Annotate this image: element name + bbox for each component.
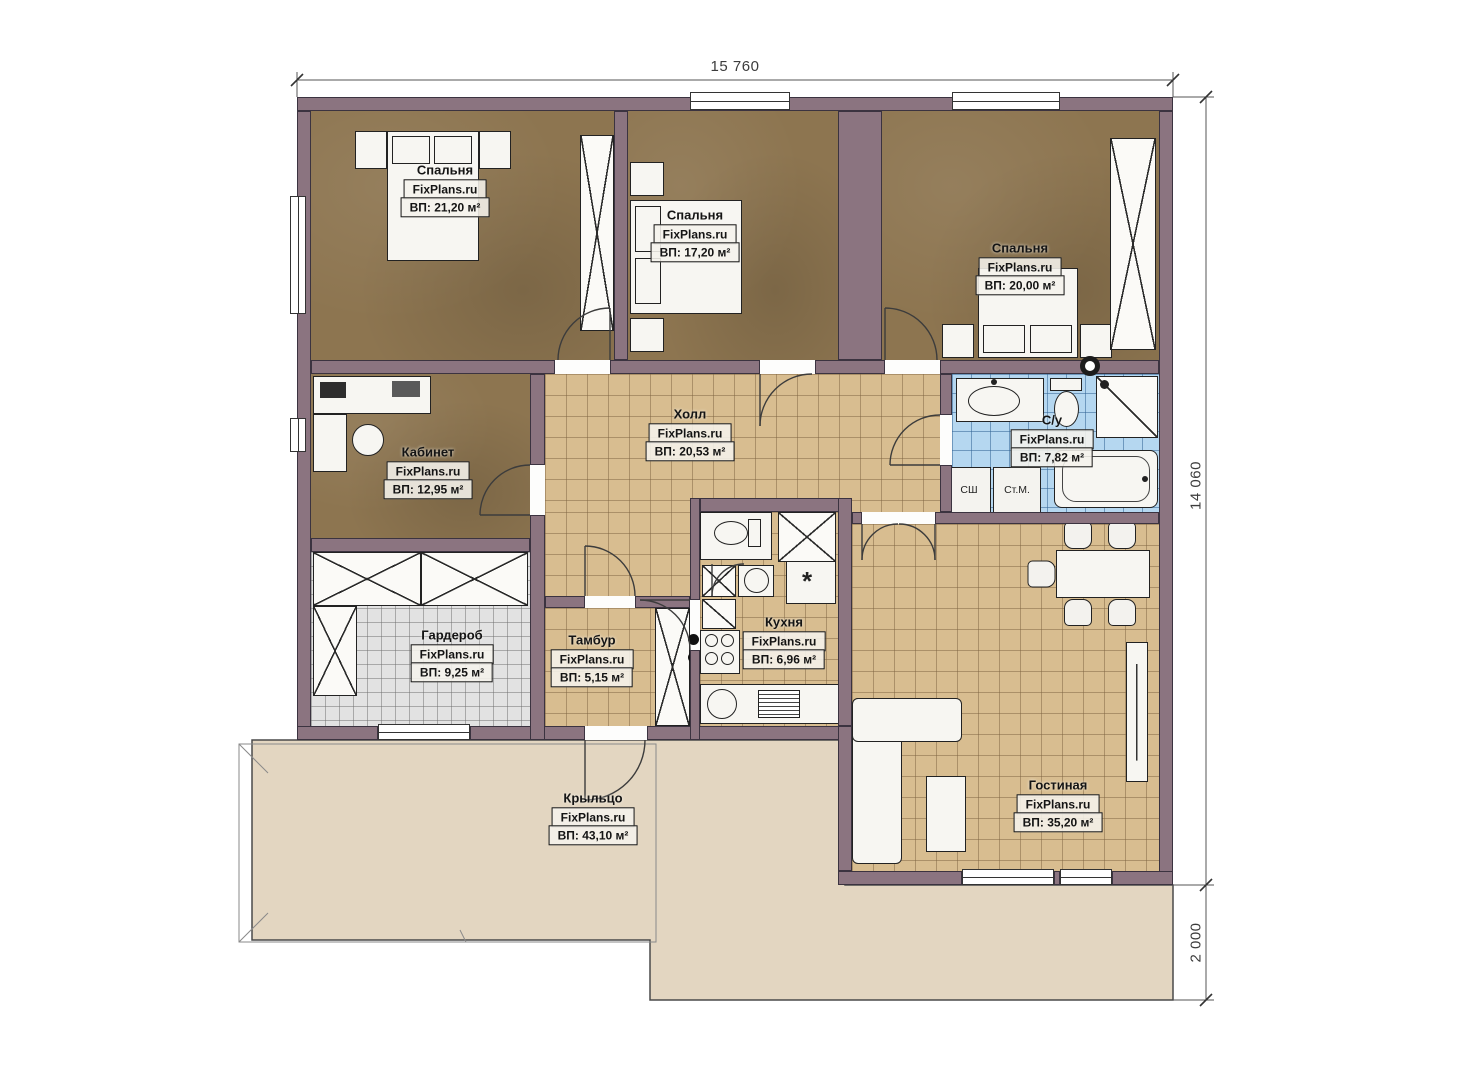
- shower-cabin: [778, 512, 836, 562]
- roof-mark: [460, 930, 466, 942]
- toilet-bowl: [714, 521, 748, 545]
- pillow: [983, 325, 1025, 353]
- room-label-kitchen: Кухня FixPlans.ru ВП: 6,96 м²: [743, 614, 826, 669]
- window: [290, 196, 306, 314]
- pillow: [1030, 325, 1072, 353]
- room-hall-floor: [545, 374, 940, 512]
- room-label-hall: Холл FixPlans.ru ВП: 20,53 м²: [646, 406, 735, 461]
- window: [690, 92, 790, 110]
- bath-faucet: [1142, 476, 1148, 482]
- room-area: ВП: 7,82 м²: [1011, 448, 1093, 468]
- wall: [935, 512, 1159, 524]
- closet-hatch: [1110, 138, 1156, 350]
- wall: [838, 871, 962, 885]
- room-name: Спальня: [667, 207, 723, 222]
- wall: [852, 512, 862, 524]
- wall: [940, 360, 1159, 374]
- room-label-bathroom: С/у FixPlans.ru ВП: 7,82 м²: [1011, 412, 1094, 467]
- room-label-living: Гостиная FixPlans.ru ВП: 35,20 м²: [1014, 777, 1103, 832]
- chair: [1108, 599, 1136, 626]
- chair: [1064, 599, 1092, 626]
- room-area: ВП: 35,20 м²: [1014, 813, 1103, 833]
- dim-tick: [1200, 91, 1212, 103]
- wall: [311, 360, 555, 374]
- vent-fan-icon: [1080, 356, 1100, 376]
- window: [1060, 869, 1112, 885]
- room-name: Кухня: [765, 614, 803, 629]
- wall: [700, 498, 852, 512]
- dim-label-porch-depth: 2 000: [1188, 898, 1205, 988]
- washing-machine-box: Ст.М.: [993, 467, 1041, 513]
- wall: [530, 374, 545, 465]
- wall: [1112, 871, 1173, 885]
- dryer-label: СШ: [960, 484, 977, 496]
- sofa-section: [852, 698, 962, 742]
- wall: [940, 374, 952, 415]
- chair: [1028, 561, 1056, 588]
- desk-return: [313, 414, 347, 472]
- room-label-bedroom-1: Спальня FixPlans.ru ВП: 21,20 м²: [401, 162, 490, 217]
- brand-watermark: FixPlans.ru: [979, 257, 1062, 277]
- brand-watermark: FixPlans.ru: [387, 461, 470, 481]
- room-area: ВП: 17,20 м²: [651, 243, 740, 263]
- pillow: [635, 258, 661, 304]
- dim-tick: [1200, 879, 1212, 891]
- room-name: Крыльцо: [563, 790, 622, 805]
- shower-head: [1100, 380, 1109, 389]
- wall: [311, 538, 530, 552]
- cabinet-hatch: [702, 565, 736, 597]
- window: [290, 418, 306, 452]
- washing-machine-label: Ст.М.: [1004, 484, 1030, 496]
- room-area: ВП: 5,15 м²: [551, 668, 633, 688]
- brand-watermark: FixPlans.ru: [649, 423, 732, 443]
- chair: [1064, 522, 1092, 549]
- burner: [721, 652, 734, 665]
- room-name: Гардероб: [421, 627, 482, 642]
- fridge-symbol: *: [802, 566, 812, 597]
- toilet-tank: [1050, 378, 1082, 391]
- wall: [815, 360, 885, 374]
- roof-hip-line: [239, 913, 268, 942]
- nightstand: [630, 318, 664, 352]
- brand-watermark: FixPlans.ru: [411, 644, 494, 664]
- room-label-porch: Крыльцо FixPlans.ru ВП: 43,10 м²: [549, 790, 638, 845]
- wall: [610, 360, 760, 374]
- dim-label-width: 15 760: [297, 58, 1173, 75]
- window: [378, 724, 470, 740]
- stove-knob: [688, 634, 699, 645]
- wall: [1159, 111, 1173, 885]
- room-label-bedroom-2: Спальня FixPlans.ru ВП: 17,20 м²: [651, 207, 740, 262]
- dryer-box: СШ: [947, 467, 991, 513]
- dim-label-depth: 14 060: [1188, 441, 1205, 531]
- room-area: ВП: 20,00 м²: [976, 276, 1065, 296]
- room-area: ВП: 9,25 м²: [411, 663, 493, 683]
- room-name: Тамбур: [568, 632, 615, 647]
- dim-tick: [291, 74, 303, 86]
- room-name: Кабинет: [402, 444, 455, 459]
- room-area: ВП: 21,20 м²: [401, 198, 490, 218]
- room-area: ВП: 43,10 м²: [549, 826, 638, 846]
- nightstand: [942, 324, 974, 358]
- window: [962, 869, 1054, 885]
- wall: [690, 498, 700, 600]
- burner: [705, 652, 718, 665]
- wall: [614, 111, 628, 360]
- brand-watermark: FixPlans.ru: [654, 224, 737, 244]
- room-name: Спальня: [992, 240, 1048, 255]
- brand-watermark: FixPlans.ru: [743, 631, 826, 651]
- room-name: Холл: [674, 406, 707, 421]
- window: [952, 92, 1060, 110]
- burner: [705, 634, 718, 647]
- closet-hatch: [655, 608, 690, 726]
- washer-drum: [744, 568, 769, 593]
- office-chair: [352, 424, 384, 456]
- room-hall-floor: [545, 512, 690, 596]
- dining-table: [1056, 550, 1150, 598]
- nightstand: [355, 131, 387, 169]
- printer: [392, 381, 420, 397]
- chair: [1108, 522, 1136, 549]
- room-area: ВП: 20,53 м²: [646, 442, 735, 462]
- water-heater: [702, 599, 736, 629]
- room-area: ВП: 6,96 м²: [743, 650, 825, 670]
- brand-watermark: FixPlans.ru: [551, 649, 634, 669]
- coffee-table: [926, 776, 966, 852]
- room-name: С/у: [1042, 412, 1062, 427]
- closet-hatch: [313, 552, 421, 606]
- closet-hatch: [421, 552, 528, 606]
- brand-watermark: FixPlans.ru: [404, 179, 487, 199]
- closet-hatch: [313, 606, 357, 696]
- room-area: ВП: 12,95 м²: [384, 480, 473, 500]
- room-label-bedroom-3: Спальня FixPlans.ru ВП: 20,00 м²: [976, 240, 1065, 295]
- roof-hip-line: [239, 744, 268, 773]
- toilet-tank: [748, 519, 761, 547]
- laptop: [320, 382, 346, 398]
- dishwasher: [758, 690, 800, 718]
- floor-plan: СШ Ст.М. *: [0, 0, 1473, 1080]
- dim-tick: [1200, 994, 1212, 1006]
- pillow: [392, 136, 430, 164]
- room-label-wardrobe: Гардероб FixPlans.ru ВП: 9,25 м²: [411, 627, 494, 682]
- dim-tick: [1167, 74, 1179, 86]
- closet-hatch: [580, 135, 614, 331]
- wall: [297, 726, 378, 740]
- pillow: [434, 136, 472, 164]
- nightstand: [630, 162, 664, 196]
- burner: [721, 634, 734, 647]
- wall: [530, 515, 545, 740]
- faucet: [991, 379, 997, 385]
- brand-watermark: FixPlans.ru: [552, 807, 635, 827]
- room-label-vestibule: Тамбур FixPlans.ru ВП: 5,15 м²: [551, 632, 634, 687]
- room-label-office: Кабинет FixPlans.ru ВП: 12,95 м²: [384, 444, 473, 499]
- wall: [647, 726, 852, 740]
- wall: [838, 498, 852, 726]
- wall: [690, 650, 700, 740]
- wall: [940, 465, 952, 512]
- brand-watermark: FixPlans.ru: [1011, 429, 1094, 449]
- tv-stand: [1126, 642, 1148, 782]
- kitchen-sink: [707, 689, 737, 719]
- room-name: Спальня: [417, 162, 473, 177]
- wall: [470, 726, 585, 740]
- room-name: Гостиная: [1029, 777, 1088, 792]
- wall: [838, 111, 882, 360]
- nightstand: [1080, 324, 1112, 358]
- wall: [545, 596, 585, 608]
- wall: [635, 596, 690, 608]
- brand-watermark: FixPlans.ru: [1017, 794, 1100, 814]
- wall: [838, 726, 852, 871]
